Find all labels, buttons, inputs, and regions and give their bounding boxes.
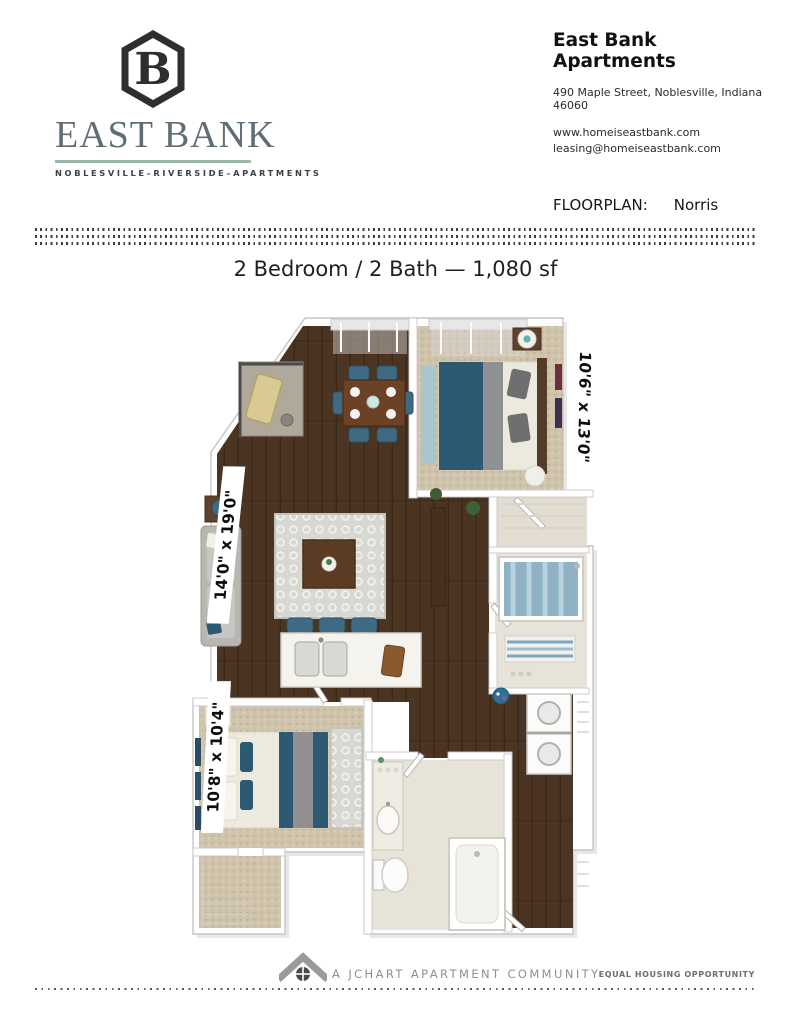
wall-art — [195, 772, 201, 800]
hamper — [493, 688, 509, 704]
plant — [466, 501, 480, 515]
property-address: 490 Maple Street, Noblesville, Indiana 4… — [553, 86, 773, 112]
striped-rug — [505, 636, 575, 662]
property-title: East Bank Apartments — [553, 30, 773, 72]
floorplan-svg — [183, 302, 615, 944]
dotted-separator-top — [35, 228, 757, 249]
tv-console — [431, 508, 445, 606]
email-link[interactable]: leasing@homeiseastbank.com — [553, 141, 773, 157]
wall-art — [555, 398, 562, 428]
plan-title: 2 Bedroom / 2 Bath — 1,080 sf — [0, 257, 791, 281]
wall-art — [555, 364, 562, 390]
cutting-board — [381, 645, 405, 677]
toilet-bowl — [382, 858, 408, 892]
website-link[interactable]: www.homeiseastbank.com — [553, 125, 773, 141]
bedroom2-closet-floor — [199, 856, 281, 928]
floorplan-image — [183, 302, 615, 944]
floorplan-label: FLOORPLAN: — [553, 196, 648, 214]
dotted-separator-bottom — [35, 988, 757, 990]
equal-housing-text: EQUAL HOUSING OPPORTUNITY — [599, 970, 755, 979]
sink — [323, 642, 347, 676]
contact-block: East Bank Apartments 490 Maple Street, N… — [553, 30, 773, 157]
brand-logo-block: B EAST BANK NOBLESVILLE–RIVERSIDE–APARTM… — [55, 30, 251, 178]
brand-tagline: NOBLESVILLE–RIVERSIDE–APARTMENTS — [55, 168, 251, 178]
roof-window-icon — [279, 950, 327, 986]
plant — [430, 488, 442, 500]
headboard — [537, 358, 547, 474]
dimension-master-bedroom: 10'6" x 13'0" — [572, 327, 597, 487]
sink — [295, 642, 319, 676]
balcony — [239, 362, 303, 436]
accent-chair — [525, 466, 545, 486]
bedside-rug — [421, 366, 436, 464]
wall-art — [195, 738, 201, 766]
master-bath — [499, 557, 583, 677]
brand-underline — [55, 160, 251, 163]
floorplan-name: Norris — [674, 196, 718, 214]
floorplan-row: FLOORPLAN: Norris — [553, 196, 718, 214]
sink — [377, 806, 399, 834]
master-bedroom-window — [429, 319, 527, 356]
hexagon-b-logo-icon: B — [119, 30, 187, 108]
brand-name: EAST BANK — [55, 116, 251, 154]
wall-art — [195, 806, 201, 830]
flyer-page: B EAST BANK NOBLESVILLE–RIVERSIDE–APARTM… — [0, 0, 791, 1024]
community-tagline: A JCHART APARTMENT COMMUNITY — [332, 967, 600, 981]
bedroom2-rug — [331, 728, 362, 828]
svg-text:B: B — [134, 44, 171, 95]
dining-window — [331, 319, 409, 354]
